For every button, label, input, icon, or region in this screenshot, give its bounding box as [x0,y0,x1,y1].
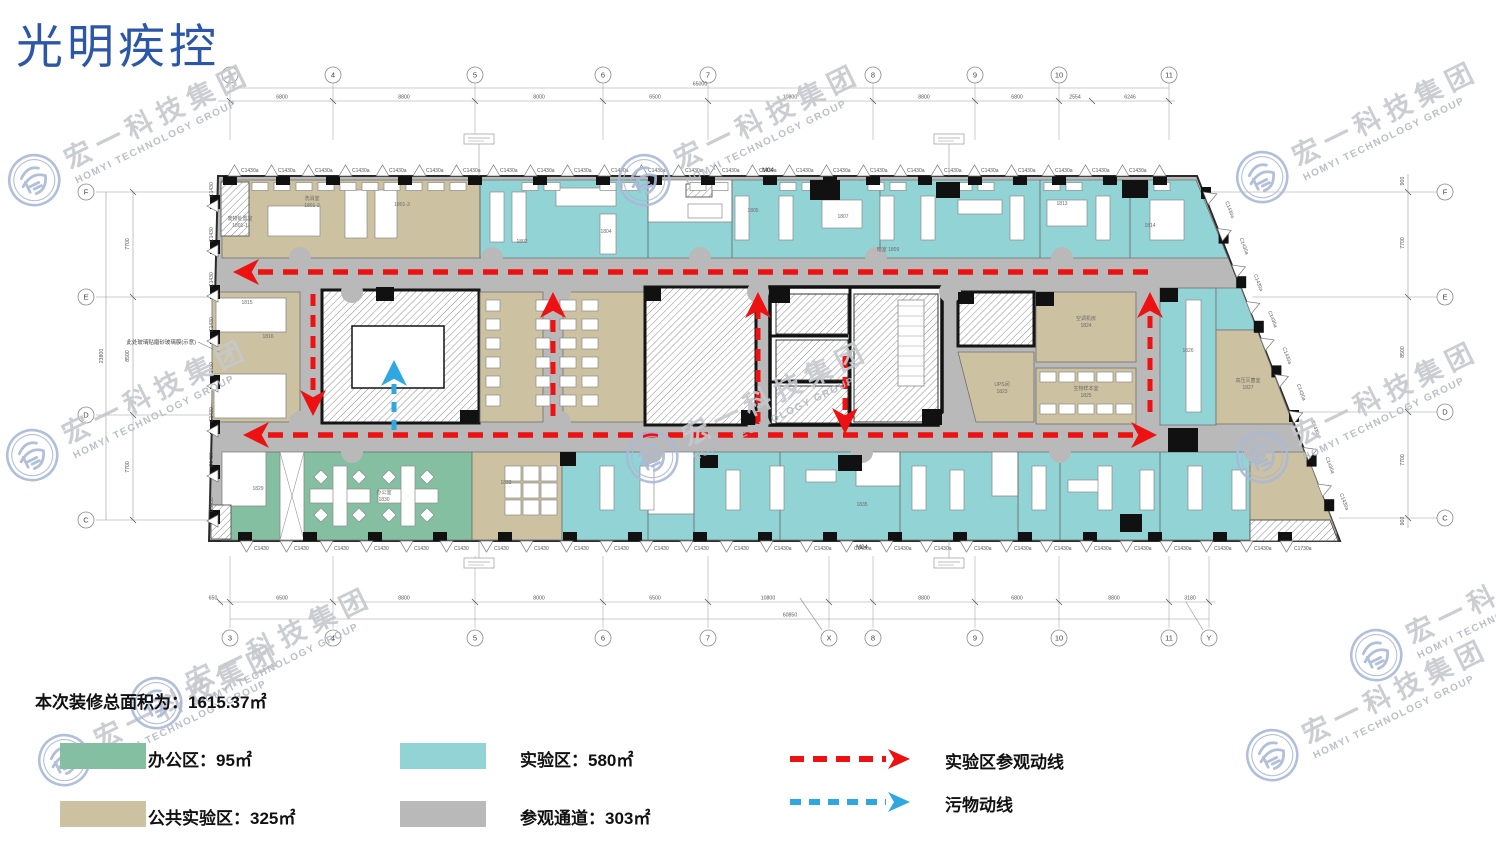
svg-text:7: 7 [706,71,710,80]
callout-box [464,134,494,144]
window-label: C1430 [654,546,669,552]
room-label: 1835 [856,502,867,508]
svg-text:5: 5 [473,71,477,80]
svg-text:11: 11 [1165,71,1173,80]
window-label: C1430 [209,227,215,242]
svg-text:60850: 60850 [783,613,798,619]
window-label: C1430a [1129,168,1147,174]
window-label: C1430a [1134,546,1152,552]
svg-text:2554: 2554 [1069,95,1081,101]
legend-visit-route-arrow [788,748,913,770]
room-label: 洗消室 [304,195,319,202]
total-area-text: 本次装修总面积为：1615.37㎡ [35,688,266,713]
svg-text:6800: 6800 [1011,596,1023,602]
window-label: C1430a [278,168,296,174]
svg-text:7700: 7700 [125,461,131,473]
room-label: 生物样本室 [1073,385,1098,392]
svg-text:900: 900 [1400,177,1406,186]
svg-text:23800: 23800 [99,349,105,364]
room-label: 1827 [1242,385,1253,391]
window-label: C1430a [1309,420,1321,439]
svg-text:3: 3 [228,71,232,80]
window-label: C1430a [352,168,370,174]
window-label: C1430a [1055,168,1073,174]
legend-label-lab: 实验区：580㎡ [520,746,633,771]
window-label: C1430a [907,168,925,174]
window-label: C1430 [534,546,549,552]
svg-text:10: 10 [1055,634,1063,643]
floor-plan-svg: 3456789101168008800800065001080088006800… [0,0,1496,676]
svg-text:10: 10 [1055,71,1063,80]
svg-text:6: 6 [601,634,605,643]
room-label: 1816 [262,334,273,340]
svg-text:900: 900 [1400,517,1406,526]
room-label: 1814 [1144,223,1155,229]
window-label: C1430a [870,168,888,174]
window-label: C1430 [254,546,269,552]
window-label: C1430a [574,168,592,174]
legend-swatch-corridor [400,801,486,827]
callout-box [934,134,964,144]
window-label: C1430a [1094,546,1112,552]
room-label: 1824 [1080,323,1091,329]
svg-text:Y: Y [1206,634,1211,643]
window-label: C1430a [500,168,518,174]
window-label: C1430a [1092,168,1110,174]
window-label: C1430 [734,546,749,552]
svg-text:X: X [826,634,831,643]
window-label: C1430a [1174,546,1192,552]
window-label: C1430 [494,546,509,552]
window-label: C1430a [537,168,555,174]
svg-text:7700: 7700 [125,238,131,250]
svg-text:F: F [84,188,89,197]
window-label: C1430a [894,546,912,552]
legend-label-office: 办公区：95㎡ [148,746,252,771]
door-label: M04 [762,168,774,174]
watermark-en: HOMYI TECHNOLOGY GROUP [1312,662,1496,761]
window-label: C1430a [648,168,666,174]
room-label: UPS间 [994,381,1009,388]
legend-swatch-office [60,743,146,769]
room-label: 1823 [996,389,1007,395]
window-label: C1430 [209,362,215,377]
window-label: C1430a [1254,546,1272,552]
svg-text:8800: 8800 [398,95,410,101]
window-label: C1430a [1223,201,1235,220]
window-label: C1430a [774,546,792,552]
window-label: C1430a [1324,456,1336,475]
room-label: 1804 [600,229,611,235]
svg-text:7700: 7700 [1400,454,1406,466]
legend-label-public-lab: 公共实验区：325㎡ [148,804,295,829]
legend-swatch-lab [400,743,486,769]
window-label: C1430a [389,168,407,174]
svg-text:65000: 65000 [693,82,708,88]
page: { "title": "光明疾控", "watermark": { "cn": … [0,0,1496,853]
room-label: 空调机房 [1076,315,1096,322]
callout-box [934,558,964,568]
window-label: C1430a [1266,310,1278,329]
room-label: 暗室 1809 [877,246,900,253]
svg-text:E: E [83,293,88,302]
window-label: C1430 [454,546,469,552]
svg-text:F: F [1443,188,1448,197]
room-label: 1813 [1056,201,1067,207]
legend-waste-route-arrow [788,791,913,813]
window-label: C1430a [981,168,999,174]
window-label: C1430a [315,168,333,174]
window-label: C1430a [685,168,703,174]
svg-text:8800: 8800 [918,95,930,101]
window-label: C1430a [1014,546,1032,552]
window-label: C1430a [1054,546,1072,552]
window-label: C1430a [833,168,851,174]
svg-text:9: 9 [973,71,977,80]
legend-label-corridor: 参观通道：303㎡ [520,804,650,829]
room-label: 1815 [241,300,252,306]
window-label: C1430a [611,168,629,174]
window-label: C1430 [209,407,215,422]
window-label: C1430a [796,168,814,174]
svg-text:8800: 8800 [398,596,410,602]
room-label: 1801-2 [304,203,320,209]
svg-text:8500: 8500 [1400,346,1406,358]
svg-text:6800: 6800 [276,95,288,101]
svg-text:C: C [1442,514,1448,523]
legend-swatch-public-lab [60,801,146,827]
room-label: 1829 [252,486,263,492]
svg-text:6500: 6500 [649,95,661,101]
window-label: C1430a [1252,274,1264,293]
room-label: 办公室 [376,489,391,496]
svg-text:650: 650 [209,596,218,602]
room-label: 1802 [516,239,527,245]
room-label: 1830 [378,497,389,503]
window-label: C1430 [209,317,215,332]
svg-text:11: 11 [1165,634,1173,643]
svg-text:8000: 8000 [533,95,545,101]
window-label: C1430 [209,497,215,512]
window-label: C1430a [463,168,481,174]
svg-text:4: 4 [331,71,335,80]
svg-text:8: 8 [871,634,875,643]
svg-text:3: 3 [228,634,232,643]
window-label: C1430a [722,168,740,174]
svg-text:8500: 8500 [125,350,131,362]
window-label: C1430 [574,546,589,552]
window-label: C1430a [1281,347,1293,366]
window-label: C1430a [241,168,259,174]
window-label: C1430 [209,182,215,197]
legend-label-visit-route: 实验区参观动线 [945,748,1064,773]
window-label: C1430a [1018,168,1036,174]
window-label: C1430 [694,546,709,552]
window-label: C1430a [426,168,444,174]
window-label: C1430 [374,546,389,552]
glass-film-note: 此处玻璃贴磨砂玻璃膜(示意) [126,338,196,346]
room-label: 高压灭菌室 [1235,377,1260,384]
svg-text:8000: 8000 [533,596,545,602]
svg-text:9: 9 [973,634,977,643]
svg-text:7: 7 [706,634,710,643]
window-label: C1430 [614,546,629,552]
svg-text:D: D [83,411,89,420]
room-label: 1807 [837,214,848,220]
svg-text:8800: 8800 [918,596,930,602]
svg-text:8: 8 [871,71,875,80]
callout-box [464,558,494,568]
room-label: 1832 [500,480,511,486]
window-label: C1430a [814,546,832,552]
svg-text:3180: 3180 [1184,596,1196,602]
svg-text:10800: 10800 [783,95,798,101]
window-label: C1430 [294,546,309,552]
door-label: M04 [856,545,868,551]
svg-text:5: 5 [473,634,477,643]
window-label: C1430 [414,546,429,552]
svg-text:6500: 6500 [649,596,661,602]
svg-text:8800: 8800 [1108,596,1120,602]
svg-text:C: C [83,516,89,525]
window-label: C1430a [1338,493,1350,512]
window-label: C1430a [974,546,992,552]
svg-text:4: 4 [331,634,335,643]
window-label: C1430a [1238,237,1250,256]
window-label: C1730a [1294,546,1312,552]
room-label: 1801-3 [394,202,410,208]
window-label: C1430a [1295,383,1307,402]
svg-text:E: E [1442,293,1447,302]
window-label: C1430 [209,452,215,467]
svg-text:6800: 6800 [1011,95,1023,101]
room-label: 1801-1 [232,223,248,229]
window-label: C1430 [209,272,215,287]
window-label: C1430a [1214,546,1232,552]
svg-text:6: 6 [601,71,605,80]
window-label: C1430 [334,546,349,552]
svg-text:D: D [1442,408,1448,417]
svg-text:6500: 6500 [276,596,288,602]
homyi-logo-icon [1236,719,1308,791]
room-label: 1805 [747,208,758,214]
room-label: 1826 [1182,348,1193,354]
window-label: C1430a [944,168,962,174]
svg-text:6246: 6246 [1124,95,1136,101]
legend-label-waste-route: 污物动线 [945,791,1013,816]
room-label: 废物处置室 [227,215,252,222]
svg-text:7700: 7700 [1400,237,1406,249]
room-label: 1825 [1080,393,1091,399]
svg-text:10800: 10800 [761,596,776,602]
